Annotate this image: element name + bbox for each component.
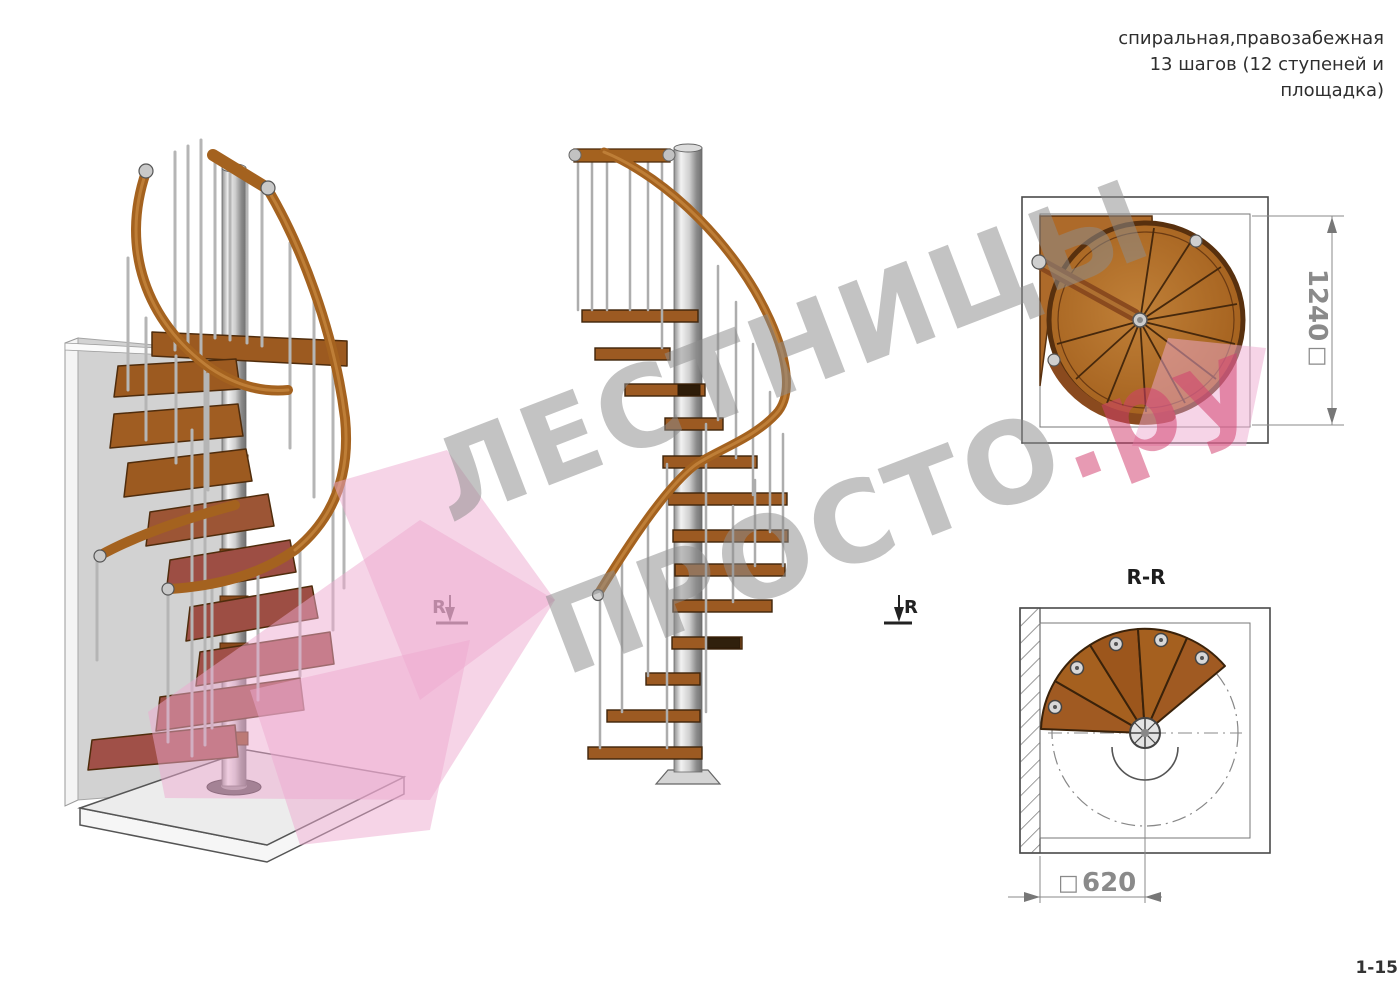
dimension-1240: 1240 □ [1252,216,1344,425]
rail-cap [139,164,153,178]
page-number: 1-15 [1355,958,1398,978]
section-label: R-R [1126,565,1165,589]
section-marker-right-label: R [904,597,918,618]
dim-1240-square-symbol: □ [1307,343,1328,368]
section-view: R-R [1008,565,1270,903]
title-line1: спиральная,правозабежная [1118,28,1384,49]
plan-hub-center [1137,317,1143,323]
dim-620-square-symbol: □ [1058,871,1079,896]
dim-1240-value: 1240 [1302,269,1332,341]
dim-620-value: 620 [1082,868,1136,898]
rail-stub [1190,235,1202,247]
rail-cap [162,583,174,595]
dimension-620: □ 620 [1008,856,1162,903]
section-marker-right: R [884,595,918,623]
rail-cap [569,149,581,161]
drawing-sheet: 1240 □ R-R [0,0,1400,1000]
section-tread-fan [1041,629,1225,733]
pole-top-cap-front [674,144,702,152]
title-line3: площадка) [1280,80,1384,101]
wall-edge [65,338,78,806]
rail-cap [94,550,106,562]
section-wall-hatch [1020,608,1040,853]
rail-cap [261,181,275,195]
rail-cap [1048,354,1060,366]
title-line2: 13 шагов (12 ступеней и [1150,54,1384,75]
stair-drawing-canvas: 1240 □ R-R [0,0,1400,1000]
title-block: спиральная,правозабежная 13 шагов (12 ст… [1118,28,1384,101]
rail-cap [663,149,675,161]
